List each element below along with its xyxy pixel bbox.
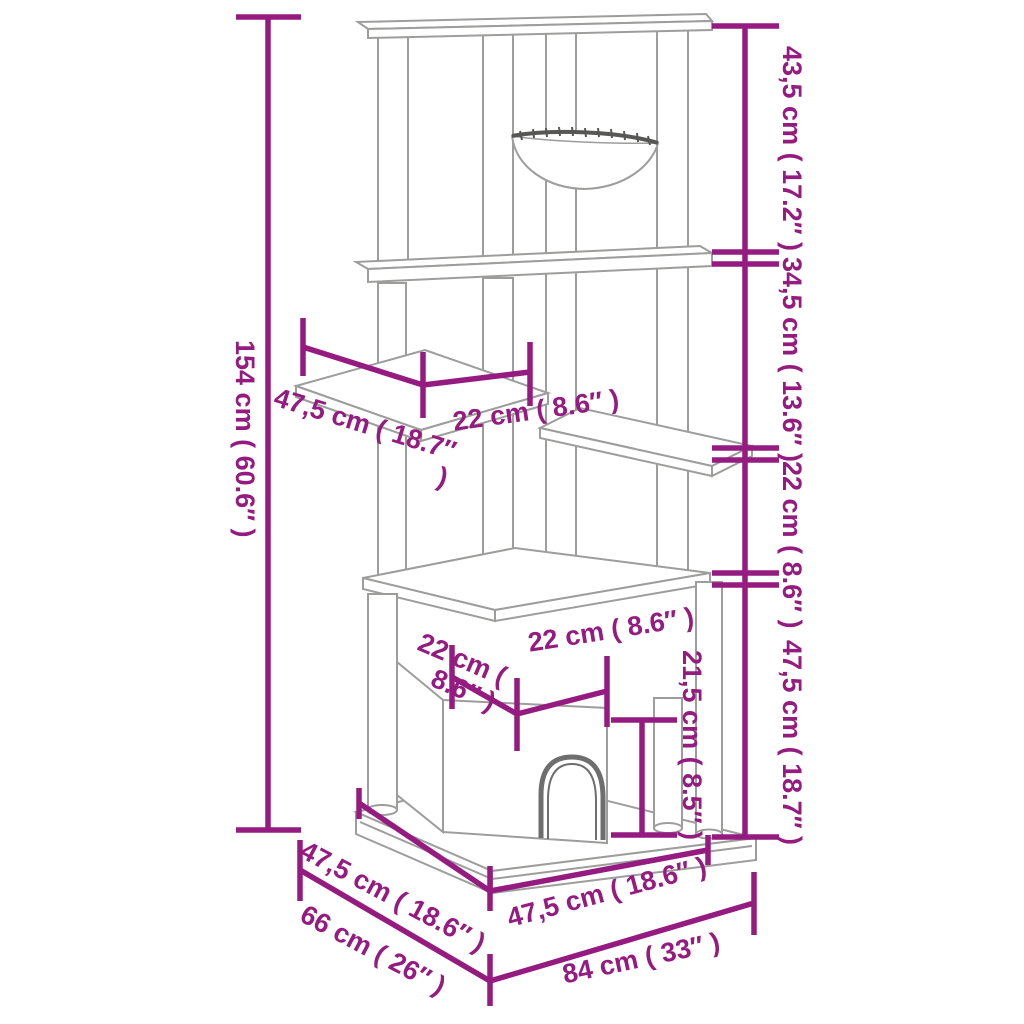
dim-top-section: 43,5 cm ( 17.2″ ): [778, 46, 806, 251]
dim-door-height: 21,5 cm ( 8.5″ ): [678, 650, 706, 840]
dim-upper-mid-section: 34,5 cm ( 13.6″ ): [778, 257, 806, 462]
dim-lower-mid-section: 22 cm ( 8.6″ ): [778, 461, 806, 629]
dim-total-height: 154 cm ( 60.6″ ): [231, 340, 259, 538]
dim-bottom-section: 47,5 cm ( 18.7″ ): [778, 640, 806, 845]
dimension-diagram: 154 cm ( 60.6″ ) 43,5 cm ( 17.2″ ) 34,5 …: [0, 0, 1024, 1024]
dimension-lines: [0, 0, 1024, 1024]
